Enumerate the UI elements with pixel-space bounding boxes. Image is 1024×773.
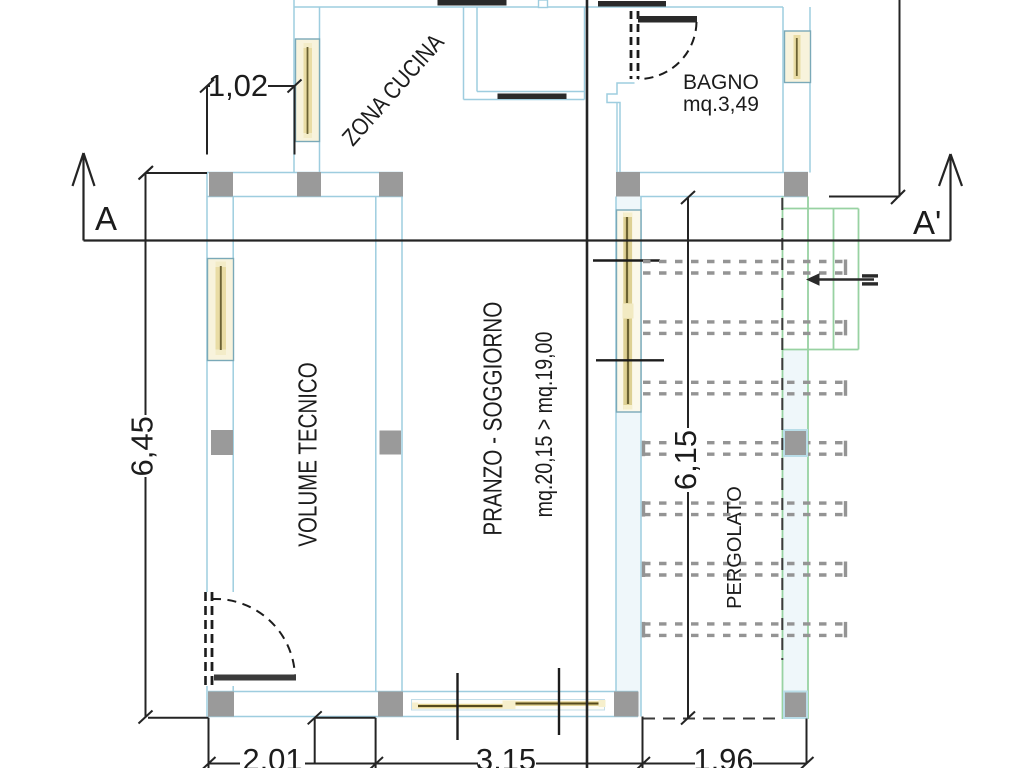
svg-text:mq.20,15 > mq.19,00: mq.20,15 > mq.19,00 xyxy=(530,332,558,518)
svg-text:3,15: 3,15 xyxy=(476,742,536,768)
svg-text:6,45: 6,45 xyxy=(125,416,160,476)
svg-text:VOLUME TECNICO: VOLUME TECNICO xyxy=(293,362,322,546)
svg-text:mq.3,49: mq.3,49 xyxy=(683,93,759,116)
svg-text:6,15: 6,15 xyxy=(668,430,703,490)
svg-text:BAGNO: BAGNO xyxy=(683,71,759,94)
svg-text:1,02: 1,02 xyxy=(208,68,268,103)
svg-text:2,01: 2,01 xyxy=(242,742,302,768)
svg-text:A: A xyxy=(95,200,117,237)
svg-text:PRANZO - SOGGIORNO: PRANZO - SOGGIORNO xyxy=(478,302,507,536)
svg-text:A': A' xyxy=(913,204,941,241)
svg-text:PERGOLATO: PERGOLATO xyxy=(724,486,746,609)
svg-text:1,96: 1,96 xyxy=(693,742,753,768)
